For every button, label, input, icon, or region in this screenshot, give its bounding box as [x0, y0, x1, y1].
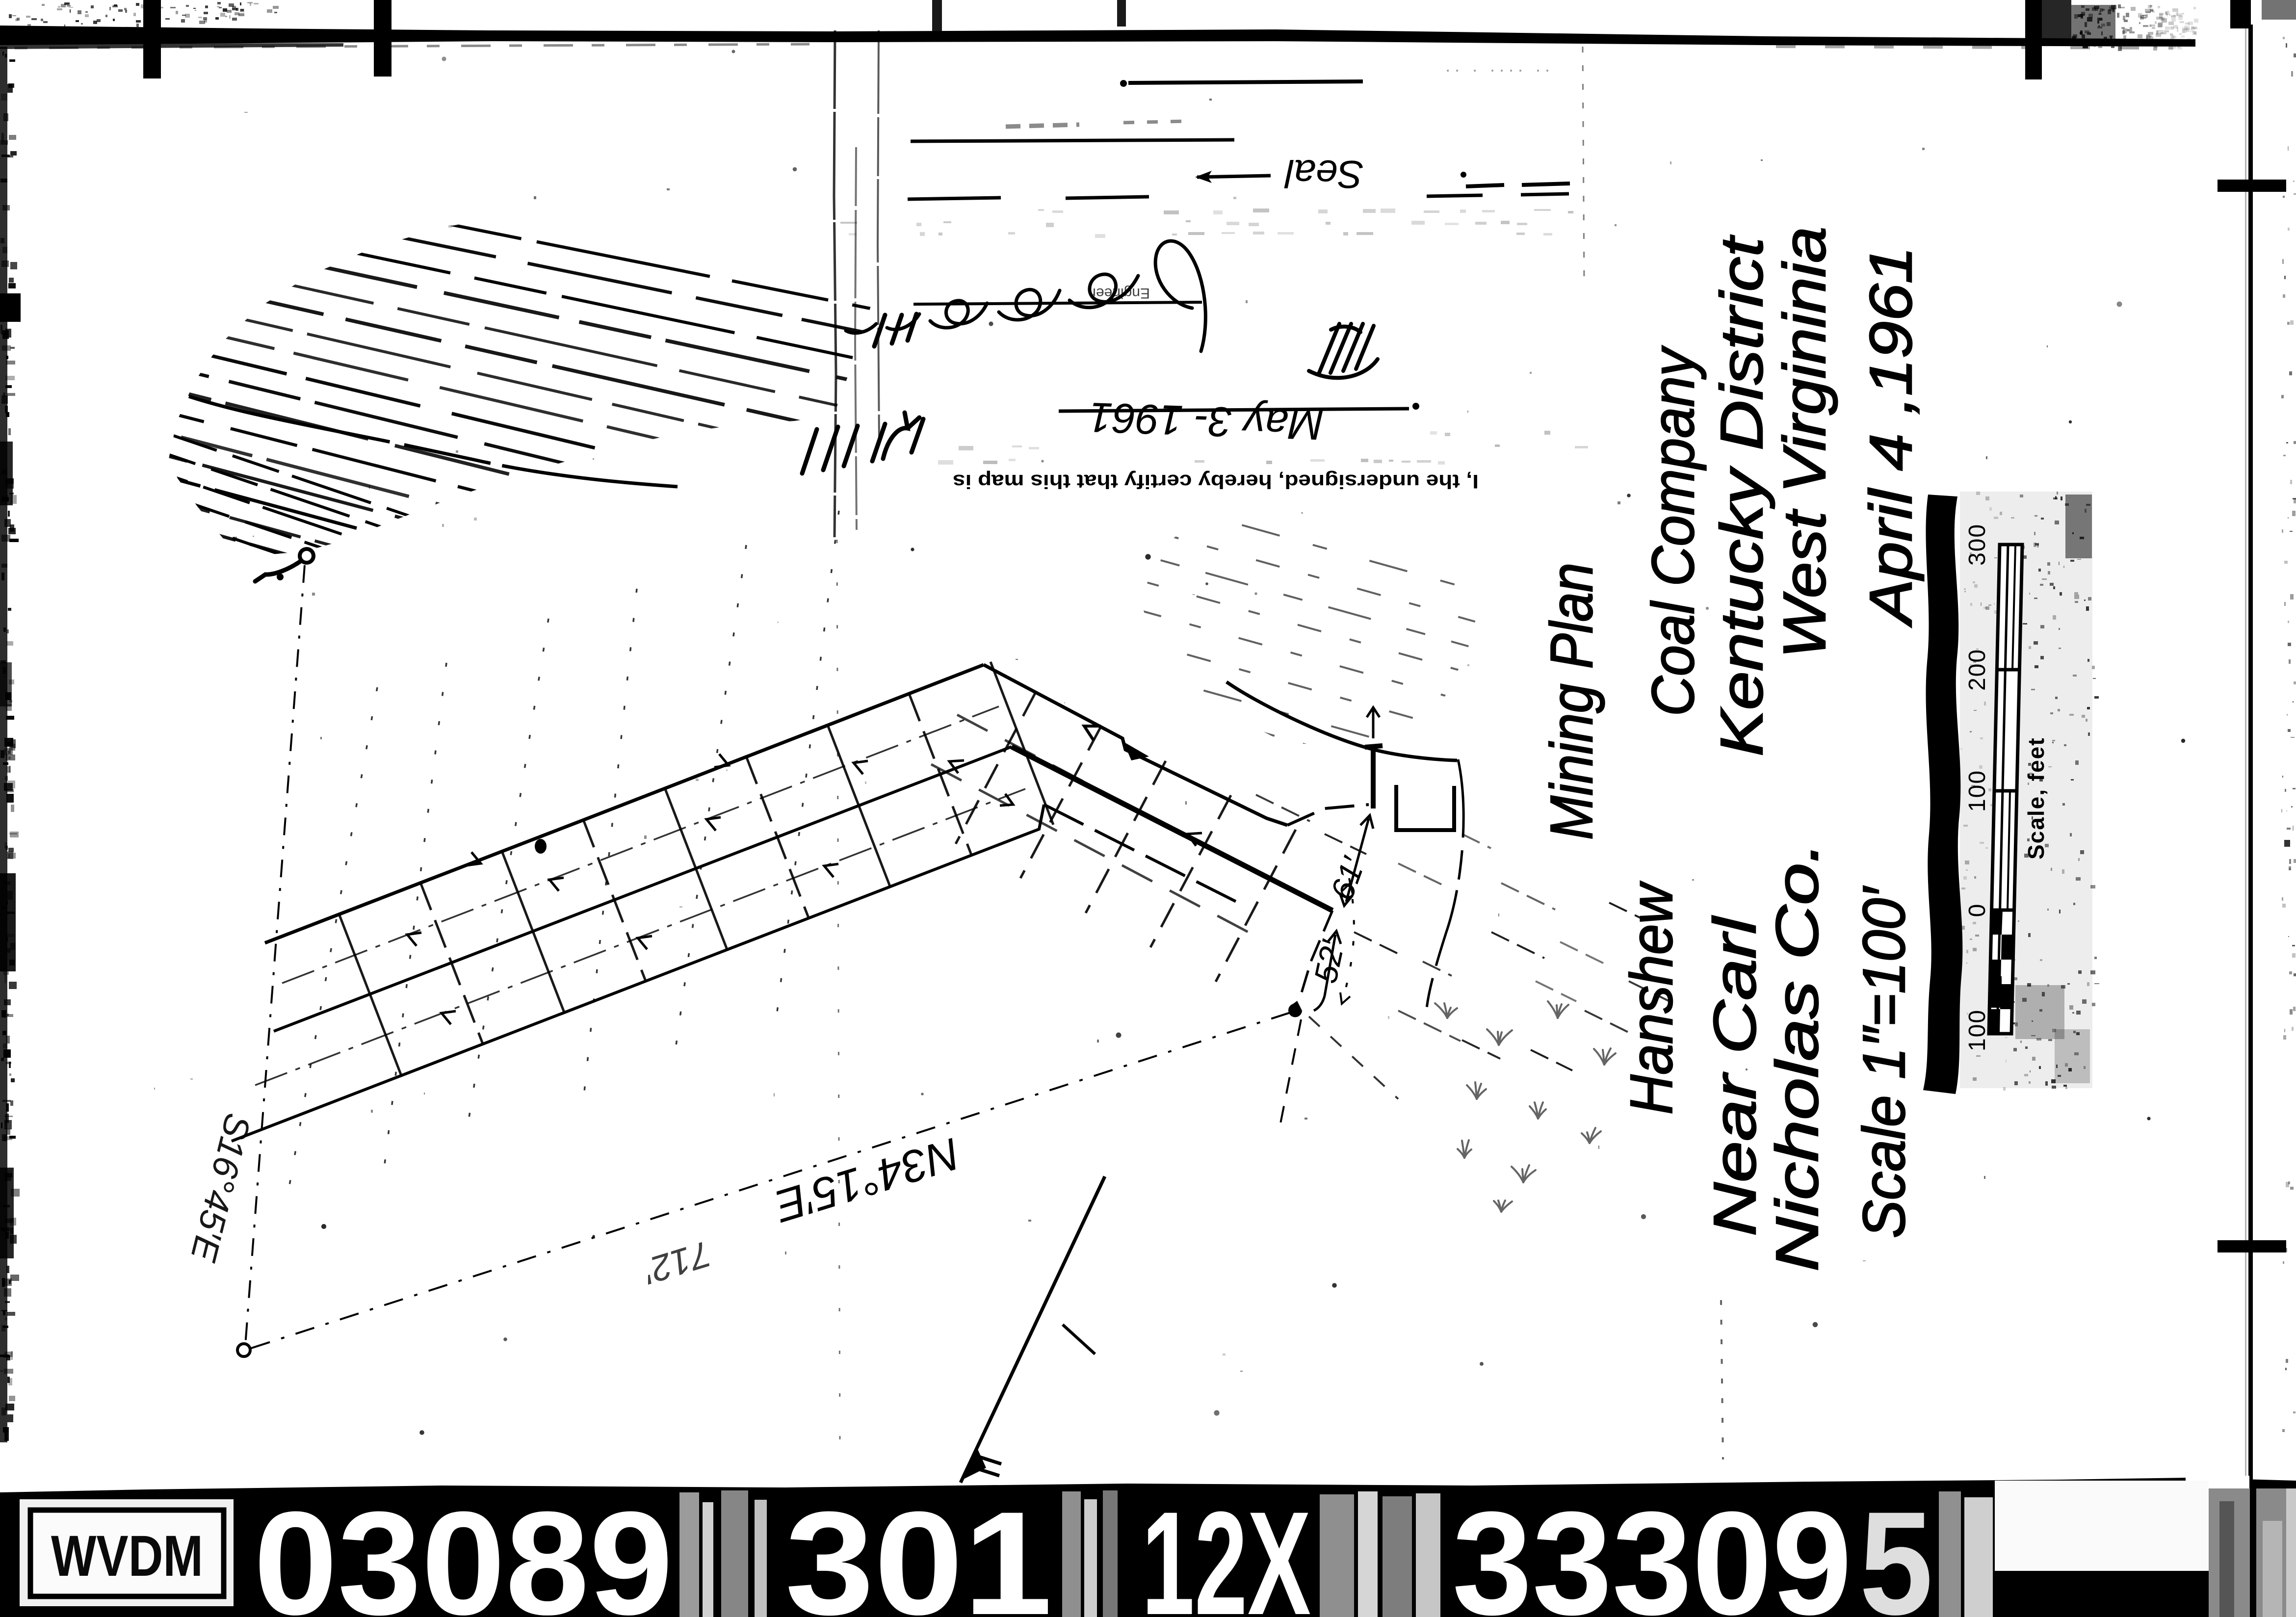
svg-text:·· ···· · ··: ·· ···· · ·· [1441, 62, 1550, 82]
svg-text:WVDM: WVDM [51, 1524, 203, 1589]
svg-text:100: 100 [1964, 1009, 1990, 1051]
svg-text:I, the undersigned, hereby cer: I, the undersigned, hereby certify that … [953, 470, 1479, 492]
svg-text:100: 100 [1964, 770, 1990, 812]
svg-text:Seal: Seal [1284, 152, 1364, 197]
svg-text:Engineer: Engineer [1091, 285, 1150, 301]
svg-text:5: 5 [1859, 1481, 1933, 1617]
svg-text:West Virgininia: West Virgininia [1771, 227, 1838, 658]
svg-text:200: 200 [1964, 649, 1990, 691]
svg-text:May 3- 1961: May 3- 1961 [1088, 393, 1324, 449]
svg-text:Near Carl: Near Carl [1701, 915, 1768, 1236]
svg-text:03089: 03089 [254, 1481, 673, 1617]
svg-text:Kentucky District: Kentucky District [1708, 235, 1775, 756]
svg-text:300: 300 [1964, 523, 1990, 566]
svg-text:0: 0 [1964, 903, 1990, 917]
svg-text:April 4 ,1961: April 4 ,1961 [1857, 246, 1924, 628]
svg-text:Mining Plan: Mining Plan [1538, 563, 1605, 840]
svg-text:Scale 1″=100′: Scale 1″=100′ [1851, 886, 1917, 1238]
svg-text:Hanshew: Hanshew [1618, 881, 1685, 1115]
svg-text:301: 301 [785, 1481, 1052, 1617]
svg-text:Scale, feet: Scale, feet [2023, 737, 2049, 860]
svg-text:12X: 12X [1142, 1481, 1311, 1617]
svg-text:Coal Company: Coal Company [1640, 345, 1706, 716]
svg-text:33309: 33309 [1452, 1481, 1852, 1617]
svg-text:Nicholas Co.: Nicholas Co. [1764, 842, 1830, 1272]
